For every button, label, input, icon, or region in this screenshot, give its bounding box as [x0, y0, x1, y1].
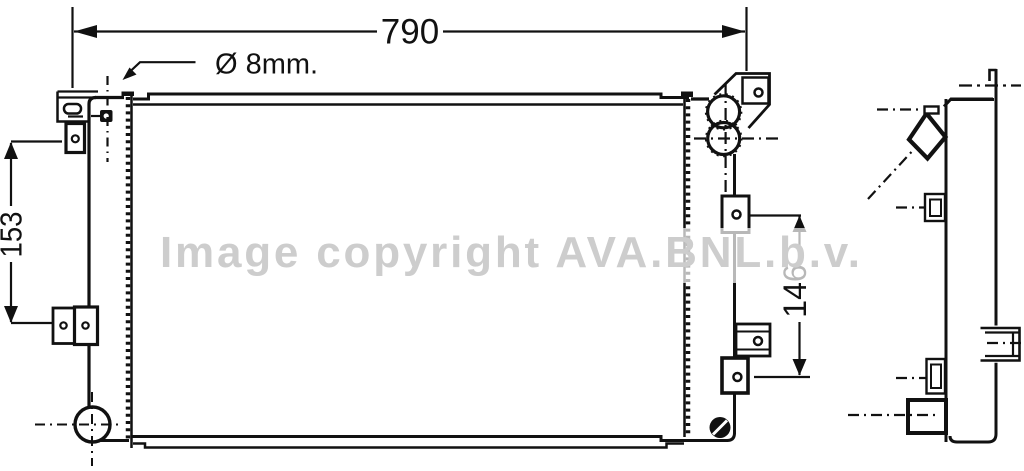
svg-text:153: 153 — [0, 212, 29, 258]
svg-text:790: 790 — [381, 13, 439, 52]
svg-text:Ø 8mm.: Ø 8mm. — [215, 49, 318, 81]
svg-text:Image copyright AVA.BNL.b.v.: Image copyright AVA.BNL.b.v. — [160, 228, 860, 277]
